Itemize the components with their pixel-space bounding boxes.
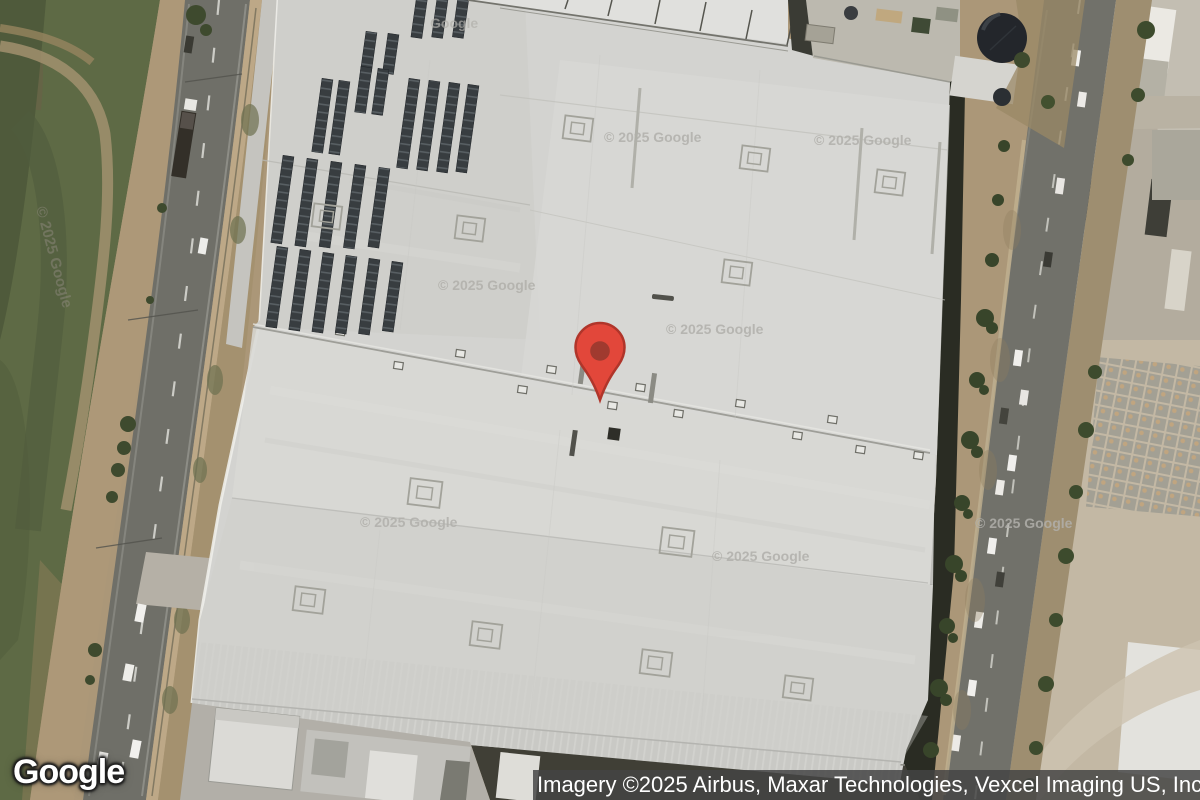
svg-text:© 2025 Google: © 2025 Google [814,132,912,148]
svg-text:© 2025 Google: © 2025 Google [712,548,810,564]
svg-text:Google: Google [430,15,478,31]
svg-text:© 2025 Google: © 2025 Google [438,277,536,293]
svg-text:© 2025 Google: © 2025 Google [666,321,764,337]
svg-text:© 2025 Google: © 2025 Google [975,515,1073,531]
svg-text:© 2025 Google: © 2025 Google [360,514,458,530]
svg-text:© 2025 Google: © 2025 Google [604,129,702,145]
